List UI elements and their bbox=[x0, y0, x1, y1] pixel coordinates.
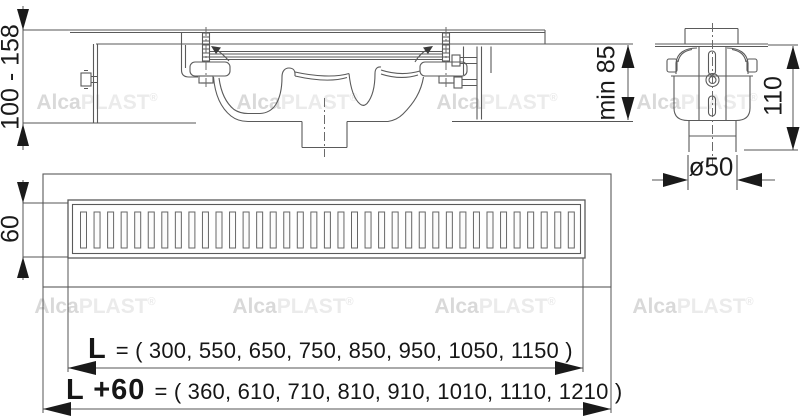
grate-slot bbox=[514, 212, 520, 248]
length-dimension-text: L = ( 300, 550, 650, 750, 850, 950, 1050… bbox=[88, 333, 573, 366]
grate-slot bbox=[81, 212, 87, 248]
grate-slot bbox=[189, 212, 195, 248]
grate-slots bbox=[81, 212, 575, 248]
length-plus-dimension-text: L +60 = ( 360, 610, 710, 810, 910, 1010,… bbox=[66, 374, 622, 407]
grate-slot bbox=[528, 212, 534, 248]
grate-slot bbox=[541, 212, 547, 248]
grate-slot bbox=[555, 212, 561, 248]
grate-slot bbox=[419, 212, 425, 248]
grate-slot bbox=[324, 212, 330, 248]
grate-slot bbox=[175, 212, 181, 248]
grate-slot bbox=[352, 212, 358, 248]
grate-slot bbox=[230, 212, 236, 248]
grate-slot bbox=[284, 212, 290, 248]
length-plus-symbol: L +60 bbox=[66, 374, 145, 407]
grate-slot bbox=[121, 212, 127, 248]
grate-slot bbox=[311, 212, 317, 248]
grate-width-label: 60 bbox=[0, 215, 26, 243]
grate-slot bbox=[460, 212, 466, 248]
grate-slot bbox=[501, 212, 507, 248]
grate-slot bbox=[433, 212, 439, 248]
length-values: = ( 300, 550, 650, 750, 850, 950, 1050, … bbox=[116, 338, 573, 364]
length-plus-values: = ( 360, 610, 710, 810, 910, 1010, 1110,… bbox=[154, 379, 622, 405]
grate-slot bbox=[406, 212, 412, 248]
grate-slot bbox=[297, 212, 303, 248]
min-depth-label: min 85 bbox=[593, 45, 622, 120]
grate-slot bbox=[365, 212, 371, 248]
dim-100-158 bbox=[17, 6, 196, 150]
section-leader-arrowheads bbox=[211, 46, 433, 54]
grate-slot bbox=[216, 212, 222, 248]
grate-slot bbox=[202, 212, 208, 248]
pipe-diameter-label: ø50 bbox=[689, 152, 734, 183]
grate-slot bbox=[568, 212, 574, 248]
grate-slot bbox=[379, 212, 385, 248]
grate-slot bbox=[94, 212, 100, 248]
section-view bbox=[55, 30, 633, 148]
grate-slot bbox=[392, 212, 398, 248]
grate-slot bbox=[446, 212, 452, 248]
grate-slot bbox=[148, 212, 154, 248]
technical-drawing: AlcaPLAST®AlcaPLAST®AlcaPLAST®AlcaPLAST®… bbox=[0, 0, 800, 417]
grate-slot bbox=[243, 212, 249, 248]
length-symbol: L bbox=[88, 333, 107, 366]
grate-slot bbox=[338, 212, 344, 248]
grate-slot bbox=[270, 212, 276, 248]
grate-slot bbox=[257, 212, 263, 248]
grate-slot bbox=[473, 212, 479, 248]
grate-slot bbox=[487, 212, 493, 248]
grate-slot bbox=[135, 212, 141, 248]
side-height-label: 110 bbox=[760, 76, 789, 116]
height-range-label: 100 - 158 bbox=[0, 24, 26, 130]
section-centerlines bbox=[206, 27, 446, 157]
grate-slot bbox=[108, 212, 114, 248]
grate-slot bbox=[162, 212, 168, 248]
